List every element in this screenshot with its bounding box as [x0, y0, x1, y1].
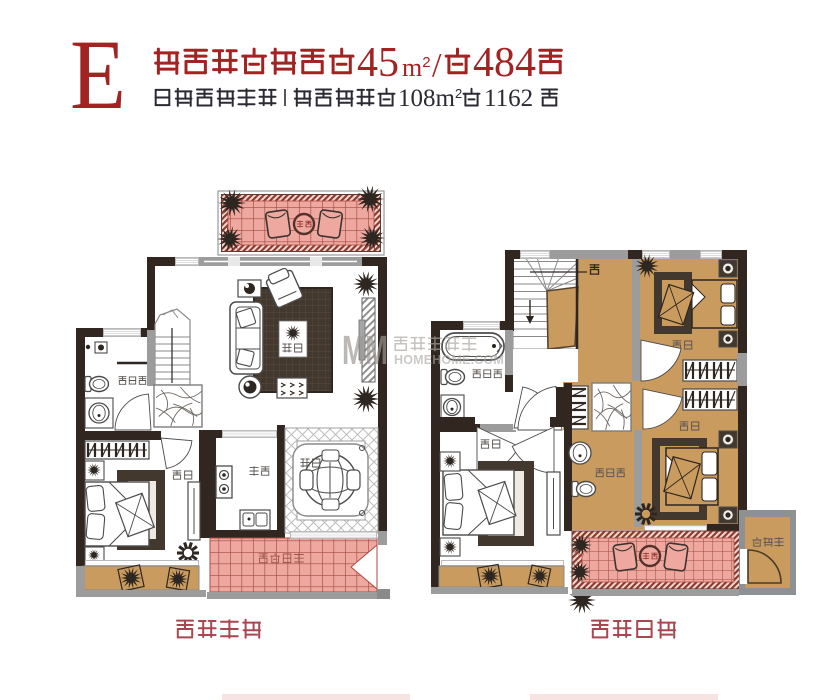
svg-text:1162: 1162 [484, 85, 533, 112]
svg-text:MM: MM [342, 327, 388, 373]
svg-text:/: / [432, 47, 442, 84]
svg-text:45: 45 [357, 40, 399, 86]
svg-text:m2: m2 [402, 53, 431, 82]
svg-text:HOMEHOME.COM: HOMEHOME.COM [394, 353, 504, 367]
svg-text:484: 484 [473, 40, 536, 86]
svg-text:E: E [70, 19, 126, 130]
svg-text:108m2: 108m2 [398, 85, 462, 112]
